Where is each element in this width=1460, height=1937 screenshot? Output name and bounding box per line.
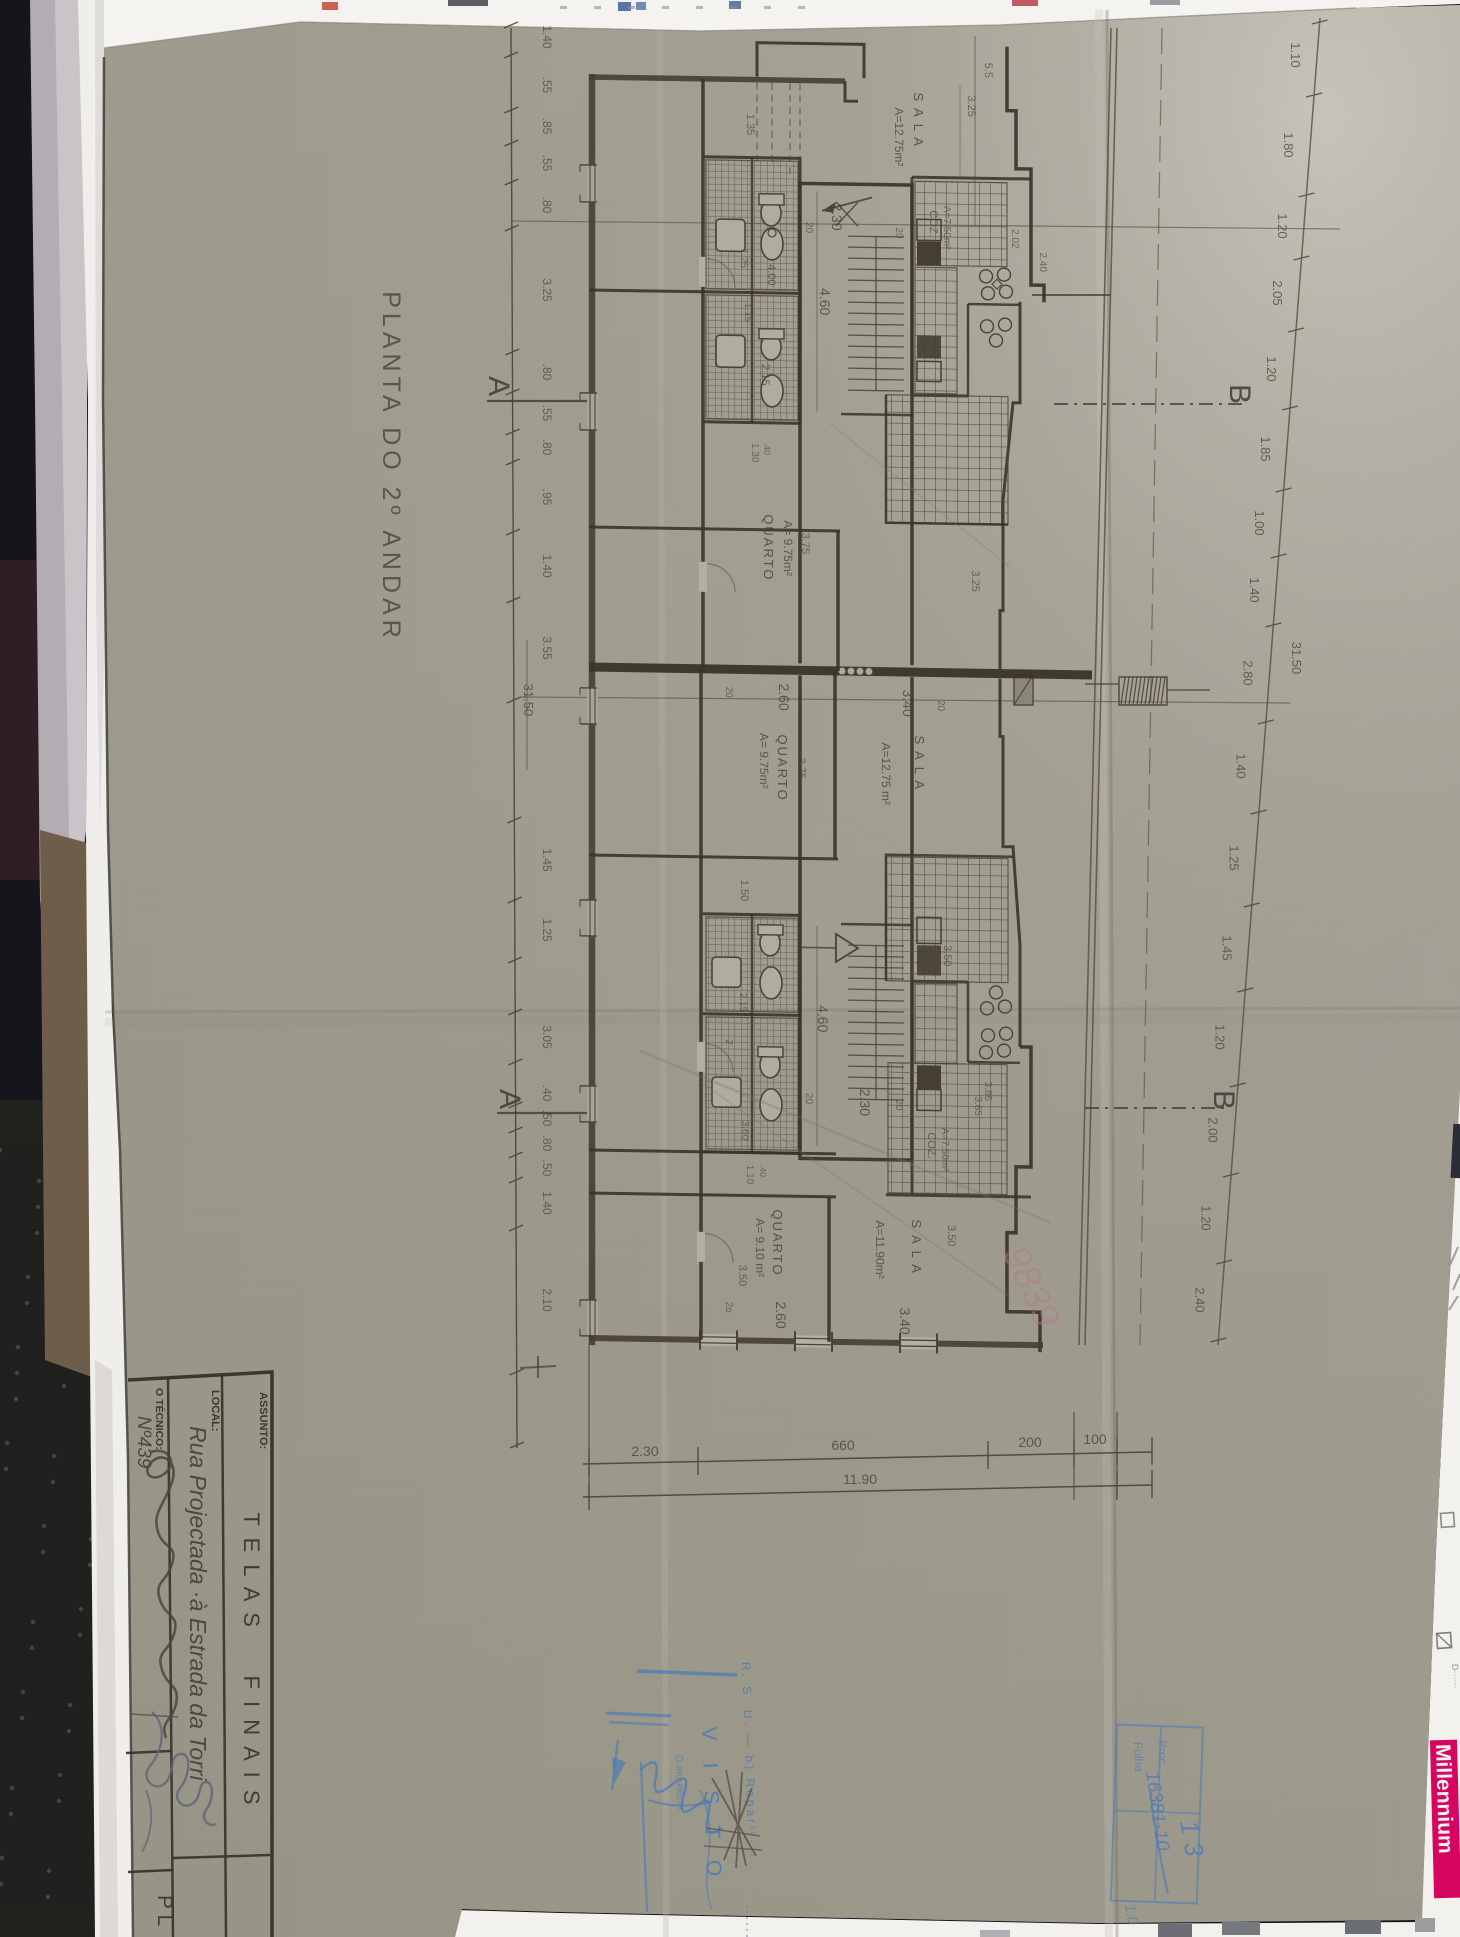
svg-text:3.25: 3.25	[969, 570, 981, 592]
svg-text:3.05: 3.05	[540, 1025, 554, 1049]
svg-text:1.45: 1.45	[540, 848, 554, 872]
svg-text:2.15: 2.15	[759, 364, 771, 386]
svg-text:3.50: 3.50	[736, 1265, 748, 1287]
svg-text:1.25: 1.25	[1226, 845, 1241, 870]
svg-text:1.40: 1.40	[1247, 577, 1262, 602]
svg-text:3.40: 3.40	[900, 689, 916, 717]
svg-text:1.15: 1.15	[742, 303, 753, 323]
svg-text:QUARTO: QUARTO	[775, 734, 790, 801]
svg-text:20: 20	[723, 687, 734, 699]
svg-text:1.45: 1.45	[1219, 935, 1234, 960]
svg-text:2.05: 2.05	[1270, 280, 1285, 305]
svg-text:31.50: 31.50	[1289, 642, 1304, 675]
svg-text:2.40: 2.40	[1192, 1287, 1207, 1312]
svg-text:.85: .85	[540, 118, 554, 135]
svg-text:.55: .55	[540, 405, 554, 422]
svg-text:200: 200	[1018, 1434, 1042, 1450]
svg-text:COZ.: COZ.	[925, 1132, 937, 1158]
svg-text:2.00: 2.00	[1205, 1117, 1220, 1142]
svg-text:2.30: 2.30	[857, 1089, 873, 1117]
svg-text:20: 20	[893, 227, 904, 239]
svg-text:3.50: 3.50	[945, 1225, 957, 1247]
svg-text:1.35: 1.35	[744, 114, 756, 136]
svg-text:5.5: 5.5	[982, 63, 994, 78]
svg-text:.95: .95	[540, 489, 554, 506]
svg-text:20: 20	[893, 1099, 904, 1111]
svg-text:3.25: 3.25	[540, 278, 554, 302]
svg-text:.50: .50	[540, 1160, 554, 1177]
svg-text:4.00: 4.00	[765, 264, 777, 286]
svg-text:2: 2	[723, 1039, 734, 1045]
svg-text:4.60: 4.60	[817, 288, 833, 316]
svg-text:D······: D······	[1450, 1664, 1460, 1689]
svg-text:Millennium: Millennium	[1431, 1744, 1457, 1854]
svg-text:A=7.50m²: A=7.50m²	[941, 206, 952, 250]
svg-text:A=12.75m²: A=12.75m²	[892, 107, 906, 166]
svg-text:2.30: 2.30	[829, 203, 845, 231]
svg-text:Rua Projectada ·à Estrada d: Rua Projectada ·à Estrada da Torri	[185, 1426, 211, 1781]
svg-text:20: 20	[935, 700, 946, 712]
svg-text:1.25: 1.25	[540, 918, 554, 942]
svg-text:A= 9.75m²: A= 9.75m²	[781, 520, 795, 576]
svg-text:S A L A: S A L A	[912, 735, 927, 791]
svg-text:3.60: 3.60	[739, 1121, 750, 1141]
svg-text:.80: .80	[540, 197, 554, 214]
svg-text:.55: .55	[540, 77, 554, 94]
svg-text:1 3: 1 3	[1174, 1818, 1210, 1859]
svg-text:11.90: 11.90	[843, 1471, 877, 1487]
svg-text:ASSUNTO:: ASSUNTO:	[257, 1392, 269, 1449]
svg-text:COZ.: COZ.	[927, 210, 939, 236]
svg-text:QUARTO: QUARTO	[761, 514, 776, 581]
svg-text:Folha: Folha	[1131, 1742, 1146, 1773]
svg-text:T E L A S F I N A I S: T E L A S F I N A I S	[239, 1512, 264, 1807]
svg-text:.40: .40	[758, 1164, 768, 1177]
svg-text:1.20: 1.20	[1199, 1205, 1214, 1230]
svg-text:1.50: 1.50	[738, 880, 750, 902]
svg-text:3.40: 3.40	[897, 1307, 913, 1335]
svg-text:1.10: 1.10	[744, 1165, 755, 1185]
svg-text:1.40: 1.40	[540, 554, 554, 578]
svg-text:B: B	[1223, 384, 1256, 404]
svg-text:2.60: 2.60	[776, 683, 792, 711]
svg-text:1.25: 1.25	[738, 249, 749, 269]
svg-text:A=11.90m²: A=11.90m²	[873, 1220, 887, 1278]
svg-text:100: 100	[1083, 1431, 1107, 1447]
svg-text:20: 20	[803, 222, 814, 234]
svg-text:A: A	[482, 376, 515, 396]
svg-text:.80: .80	[540, 1135, 554, 1152]
svg-text:2.80: 2.80	[1241, 660, 1256, 685]
svg-text:2.30: 2.30	[631, 1443, 658, 1459]
svg-text:P L: P L	[153, 1895, 176, 1926]
svg-text:.40: .40	[762, 442, 772, 455]
svg-text:A=7.50m²: A=7.50m²	[939, 1128, 950, 1172]
svg-text:2.15: 2.15	[737, 993, 748, 1013]
svg-text:31.50: 31.50	[521, 684, 536, 717]
svg-text:.80: .80	[540, 439, 554, 456]
svg-text:3.75: 3.75	[799, 533, 811, 555]
svg-text:1.00: 1.00	[1252, 510, 1267, 535]
svg-text:A: A	[493, 1089, 526, 1109]
svg-text:1.40: 1.40	[1233, 753, 1248, 778]
svg-text:.55: .55	[540, 155, 554, 172]
svg-text:2.60: 2.60	[773, 1301, 789, 1329]
svg-text:1.20: 1.20	[1264, 356, 1279, 381]
svg-text:Proc.: Proc.	[1155, 1740, 1170, 1768]
svg-text:3.65: 3.65	[972, 1096, 983, 1116]
svg-text:.80: .80	[540, 364, 554, 381]
svg-text:1.80: 1.80	[1281, 132, 1296, 157]
svg-text:S A L A: S A L A	[911, 92, 926, 148]
svg-text:20: 20	[803, 1093, 814, 1105]
svg-text:3.50: 3.50	[941, 945, 953, 967]
svg-text:4.60: 4.60	[815, 1005, 831, 1033]
svg-text:1.40: 1.40	[540, 25, 554, 49]
svg-text:2.10: 2.10	[540, 1288, 554, 1312]
svg-text:2o: 2o	[723, 1302, 734, 1314]
svg-text:PLANTA DO 2º ANDAR: PLANTA DO 2º ANDAR	[377, 291, 405, 643]
svg-text:1.30: 1.30	[749, 443, 760, 463]
svg-text:1.40: 1.40	[540, 1191, 554, 1215]
svg-text:1.20: 1.20	[1275, 213, 1290, 238]
svg-text:A= 9.75m²: A= 9.75m²	[757, 733, 771, 789]
svg-text:A=12.75 m²: A=12.75 m²	[879, 742, 893, 805]
svg-text:1.85: 1.85	[1258, 436, 1273, 461]
svg-text:2.40: 2.40	[1037, 252, 1048, 272]
svg-text:660: 660	[831, 1437, 855, 1453]
svg-text:1.20: 1.20	[1213, 1024, 1228, 1049]
svg-text:3.55: 3.55	[540, 636, 554, 660]
svg-text:QUARTO: QUARTO	[770, 1209, 785, 1276]
svg-text:A= 9.10 m²: A= 9.10 m²	[753, 1218, 767, 1277]
svg-text:3.75: 3.75	[795, 758, 807, 780]
svg-text:.40: .40	[540, 1085, 554, 1102]
svg-text:3.85: 3.85	[982, 1082, 993, 1102]
svg-text:1.10: 1.10	[1288, 42, 1303, 67]
svg-text:2.02: 2.02	[1009, 229, 1020, 249]
